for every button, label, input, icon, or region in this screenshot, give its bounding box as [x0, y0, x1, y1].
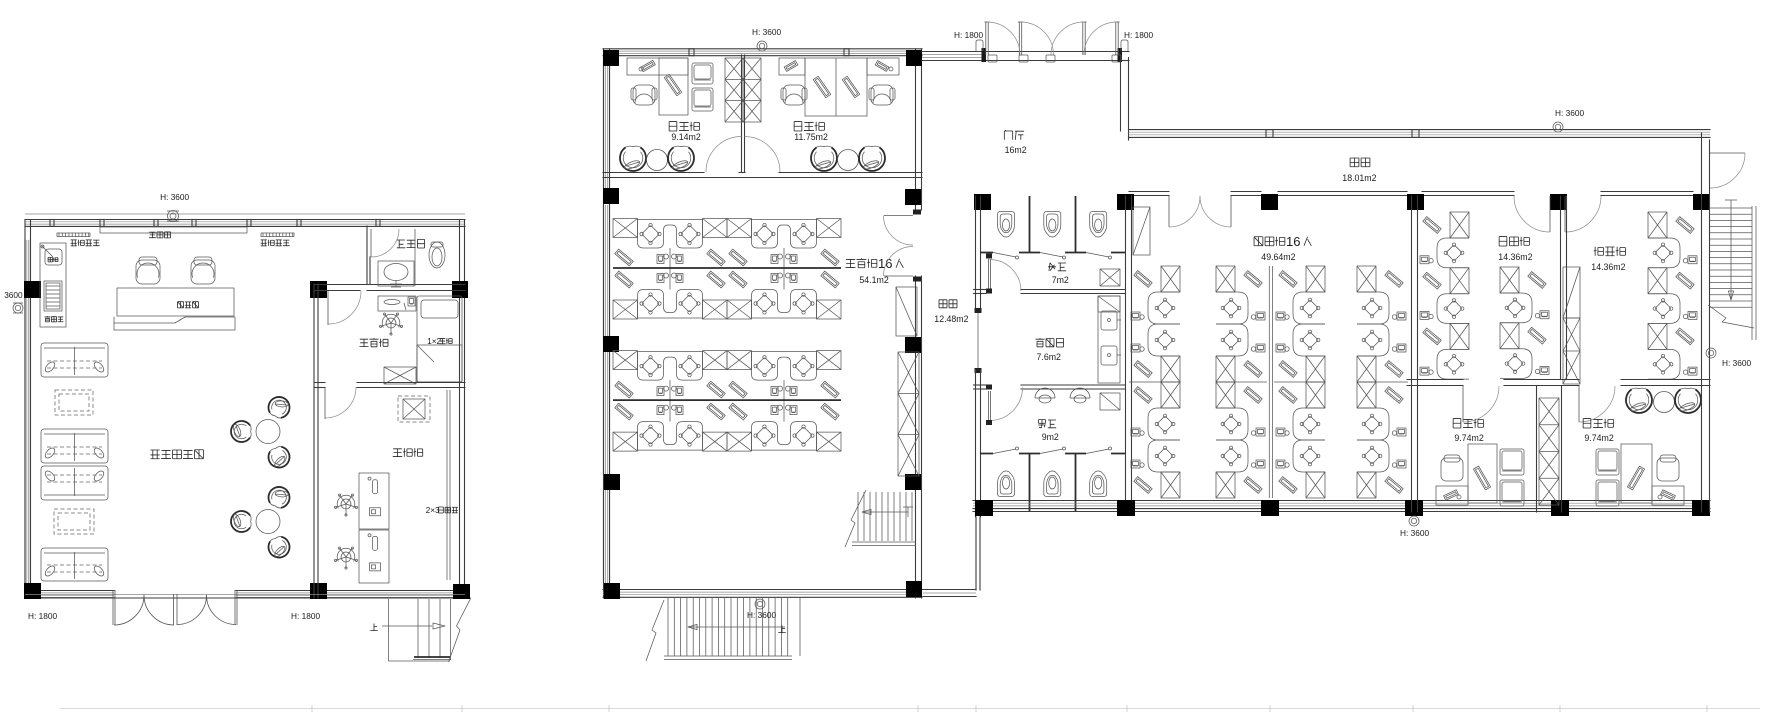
svg-text:54.1m2: 54.1m2	[859, 275, 888, 285]
svg-text:H: 1800: H: 1800	[1124, 30, 1153, 40]
svg-text:49.64m2: 49.64m2	[1261, 252, 1295, 262]
svg-text:H: 1800: H: 1800	[28, 611, 57, 621]
svg-text:H: 1800: H: 1800	[954, 30, 983, 40]
svg-text:2×3: 2×3	[426, 505, 440, 515]
svg-text:H: 3600: H: 3600	[1722, 358, 1751, 368]
svg-text:7.6m2: 7.6m2	[1037, 352, 1062, 362]
svg-text:16: 16	[1286, 234, 1300, 249]
svg-text:12.48m2: 12.48m2	[934, 314, 968, 324]
svg-text:16m2: 16m2	[1005, 145, 1027, 155]
svg-text:H: 3600: H: 3600	[1555, 108, 1584, 118]
svg-text:H: 3600: H: 3600	[160, 192, 189, 202]
svg-text:11.75m2: 11.75m2	[794, 132, 828, 142]
svg-text:9m2: 9m2	[1042, 432, 1059, 442]
svg-text:18.01m2: 18.01m2	[1342, 173, 1376, 183]
svg-text:14.36m2: 14.36m2	[1498, 252, 1532, 262]
svg-text:H: 3600: H: 3600	[747, 610, 776, 620]
svg-text:H: 3600: H: 3600	[1400, 528, 1429, 538]
svg-text:7m2: 7m2	[1052, 275, 1069, 285]
svg-text:1×2: 1×2	[427, 336, 441, 346]
svg-text:3600: 3600	[4, 290, 23, 300]
svg-text:14.36m2: 14.36m2	[1591, 262, 1625, 272]
svg-text:H: 3600: H: 3600	[752, 27, 781, 37]
svg-text:9.14m2: 9.14m2	[671, 132, 700, 142]
svg-text:16: 16	[878, 256, 892, 271]
svg-text:9.74m2: 9.74m2	[1454, 433, 1483, 443]
svg-text:H: 1800: H: 1800	[291, 611, 320, 621]
svg-text:9.74m2: 9.74m2	[1584, 433, 1613, 443]
